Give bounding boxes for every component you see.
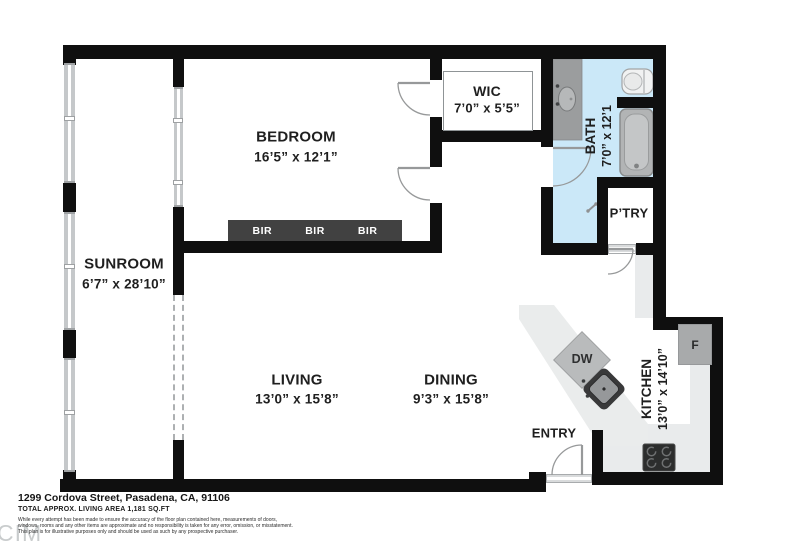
bir-label: BIR — [253, 225, 273, 237]
wall-sunroom-bottom — [173, 440, 184, 482]
wall-sunroom-top — [173, 59, 184, 87]
bath-dims: 7’0” x 12’1 — [599, 105, 615, 167]
pantry-door — [608, 249, 633, 274]
bath-handle-icon — [586, 202, 597, 212]
living-label: LIVING — [271, 372, 322, 389]
wall-bedroom-right-b — [430, 117, 442, 167]
wic-label: WIC — [473, 83, 501, 99]
wall-wic-bottom — [442, 130, 553, 142]
bir-label: BIR — [358, 225, 378, 237]
wall-toilet-divider — [617, 97, 653, 108]
window-tick — [64, 116, 75, 121]
disclaimer-line-3: This plan is for illustrative purposes o… — [18, 529, 293, 535]
window-tick — [173, 118, 183, 123]
bedroom-label: BEDROOM — [256, 129, 336, 146]
bir-label: BIR — [305, 225, 325, 237]
stove — [643, 444, 675, 471]
wall-left-stub-top — [63, 45, 76, 65]
kitchen-dims: 13’0” x 14’10” — [655, 348, 671, 430]
kitchen-label: KITCHEN — [639, 348, 655, 430]
wall-entry-kitchen — [592, 430, 603, 485]
wall-top — [64, 45, 666, 59]
wall-left-stub-mid2 — [63, 330, 76, 358]
wic-dims: 7’0” x 5’5” — [454, 101, 520, 116]
bath-label-block: BATH 7’0” x 12’1 — [583, 105, 615, 167]
wall-bedroom-right-c — [430, 203, 442, 253]
bedroom-door-hall — [398, 168, 430, 200]
dining-label: DINING — [424, 372, 478, 389]
wall-left-stub-mid1 — [63, 183, 76, 212]
window-left-2 — [64, 212, 75, 330]
sunroom-label: SUNROOM — [84, 256, 164, 273]
bathroom-vanity — [553, 59, 582, 140]
sunroom-living-opening — [173, 295, 184, 440]
fridge: F — [678, 324, 712, 365]
toilet — [622, 69, 653, 94]
window-tick — [173, 180, 183, 185]
floor-plan-page: BIR BIR BIR F BEDROOM 16’5” x 12’1” SUNR… — [0, 0, 791, 560]
window-left-1 — [64, 63, 75, 183]
bedroom-dims: 16’5” x 12’1” — [254, 150, 338, 165]
wall-bedroom-right-a — [430, 59, 442, 80]
wall-kitchen-bottom — [592, 472, 723, 485]
address-line: 1299 Cordova Street, Pasadena, CA, 91106 — [18, 492, 230, 504]
wall-left-stub-bottom — [63, 470, 76, 492]
kitchen-label-block: KITCHEN 13’0” x 14’10” — [639, 348, 671, 430]
pantry-label: P’TRY — [610, 206, 649, 221]
bath-label: BATH — [583, 105, 599, 167]
entry-door — [552, 445, 582, 475]
wall-bedroom-bottom — [173, 241, 437, 253]
dishwasher-label: DW — [572, 352, 593, 366]
sunroom-dims: 6’7” x 28’10” — [82, 277, 166, 292]
entry-label: ENTRY — [532, 426, 577, 441]
wall-pantry-bottom-right — [636, 243, 666, 255]
window-left-3 — [64, 358, 75, 472]
dining-dims: 9’3” x 15’8” — [413, 392, 489, 407]
wall-pantry-left — [597, 177, 608, 255]
bedroom-door-wic — [398, 83, 430, 115]
window-tick — [64, 410, 75, 415]
bathtub — [620, 109, 653, 176]
wall-bath-left-a — [541, 59, 553, 147]
disclaimer: While every attempt has been made to ens… — [18, 517, 293, 536]
wall-entry-step — [529, 472, 546, 492]
window-sunroom-bedroom — [174, 87, 183, 207]
fridge-label: F — [691, 338, 698, 352]
wall-bottom — [60, 479, 546, 492]
window-tick — [64, 264, 75, 269]
living-area-line: TOTAL APPROX. LIVING AREA 1,181 SQ.FT — [18, 506, 170, 513]
living-dims: 13’0” x 15’8” — [255, 392, 339, 407]
built-in-robe-bar: BIR BIR BIR — [228, 220, 402, 241]
